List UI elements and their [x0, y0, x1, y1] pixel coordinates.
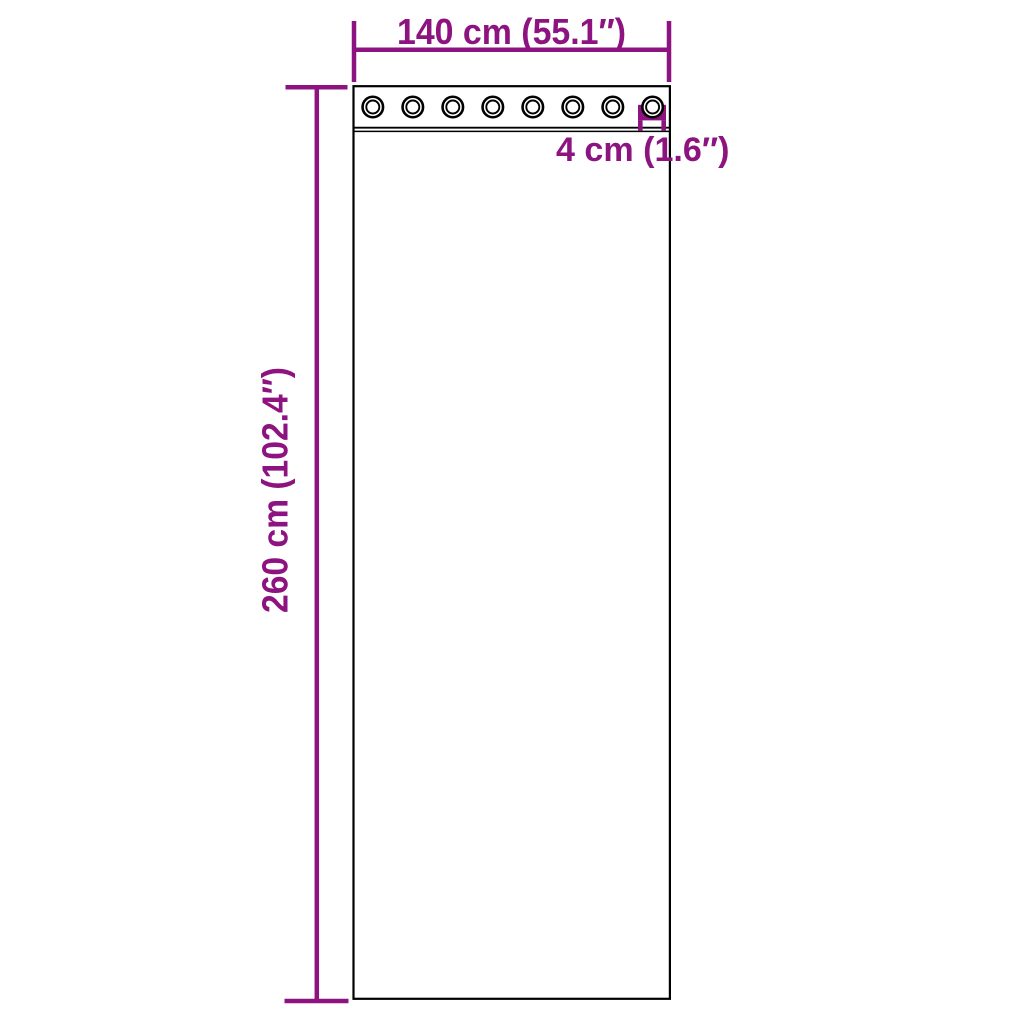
svg-text:260 cm (102.4″): 260 cm (102.4″) [255, 367, 296, 613]
svg-text:140 cm (55.1″): 140 cm (55.1″) [397, 11, 626, 52]
svg-text:4 cm (1.6″): 4 cm (1.6″) [556, 131, 730, 169]
